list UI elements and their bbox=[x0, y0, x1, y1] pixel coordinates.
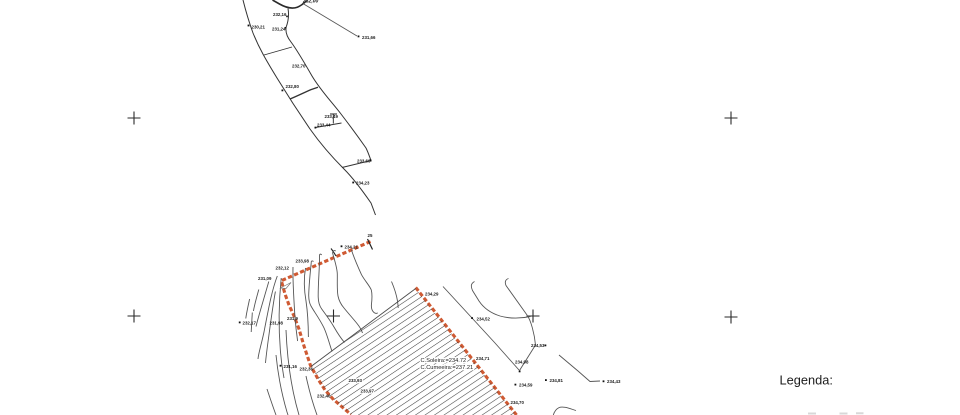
svg-text:234,43: 234,43 bbox=[607, 379, 621, 384]
svg-text:C.Soleira:=234.72: C.Soleira:=234.72 bbox=[421, 358, 467, 364]
svg-text:232,17: 232,17 bbox=[243, 321, 257, 326]
svg-text:231,24: 231,24 bbox=[272, 27, 286, 32]
svg-text:234,71: 234,71 bbox=[476, 356, 490, 361]
svg-text:233,97: 233,97 bbox=[361, 388, 375, 393]
svg-text:233,93: 233,93 bbox=[349, 378, 363, 383]
svg-text:234,23: 234,23 bbox=[356, 181, 370, 186]
svg-text:232,00: 232,00 bbox=[302, 0, 319, 4]
svg-text:234,98: 234,98 bbox=[515, 359, 529, 364]
svg-text:234,81: 234,81 bbox=[550, 378, 564, 383]
svg-text:234,52: 234,52 bbox=[477, 317, 491, 322]
svg-text:234,21: 234,21 bbox=[345, 245, 359, 250]
svg-text:234,29: 234,29 bbox=[425, 291, 439, 296]
svg-text:230,21: 230,21 bbox=[252, 25, 266, 30]
svg-text:231,66: 231,66 bbox=[362, 35, 376, 40]
svg-text:231,98: 231,98 bbox=[270, 321, 284, 326]
svg-text:234,59: 234,59 bbox=[519, 383, 533, 388]
svg-text:232,70: 232,70 bbox=[292, 64, 306, 69]
svg-text:232,12: 232,12 bbox=[276, 266, 290, 271]
svg-text:233,44: 233,44 bbox=[317, 123, 331, 128]
svg-text:232,80: 232,80 bbox=[286, 84, 300, 89]
svg-text:C.Cumeeira:=237.21: C.Cumeeira:=237.21 bbox=[421, 365, 474, 371]
svg-text:231,09: 231,09 bbox=[258, 276, 272, 281]
svg-text:25: 25 bbox=[368, 233, 373, 238]
svg-text:234,70: 234,70 bbox=[511, 400, 525, 405]
svg-text:231,16: 231,16 bbox=[284, 364, 298, 369]
svg-text:Legenda:: Legenda: bbox=[780, 373, 833, 388]
svg-text:234,53: 234,53 bbox=[531, 343, 545, 348]
svg-text:232,16: 232,16 bbox=[273, 12, 287, 17]
svg-text:231,9: 231,9 bbox=[287, 316, 299, 321]
svg-text:232,36: 232,36 bbox=[300, 367, 314, 372]
svg-text:233,49: 233,49 bbox=[325, 114, 339, 119]
svg-text:233,60: 233,60 bbox=[357, 159, 371, 164]
svg-text:233,98: 233,98 bbox=[296, 259, 310, 264]
